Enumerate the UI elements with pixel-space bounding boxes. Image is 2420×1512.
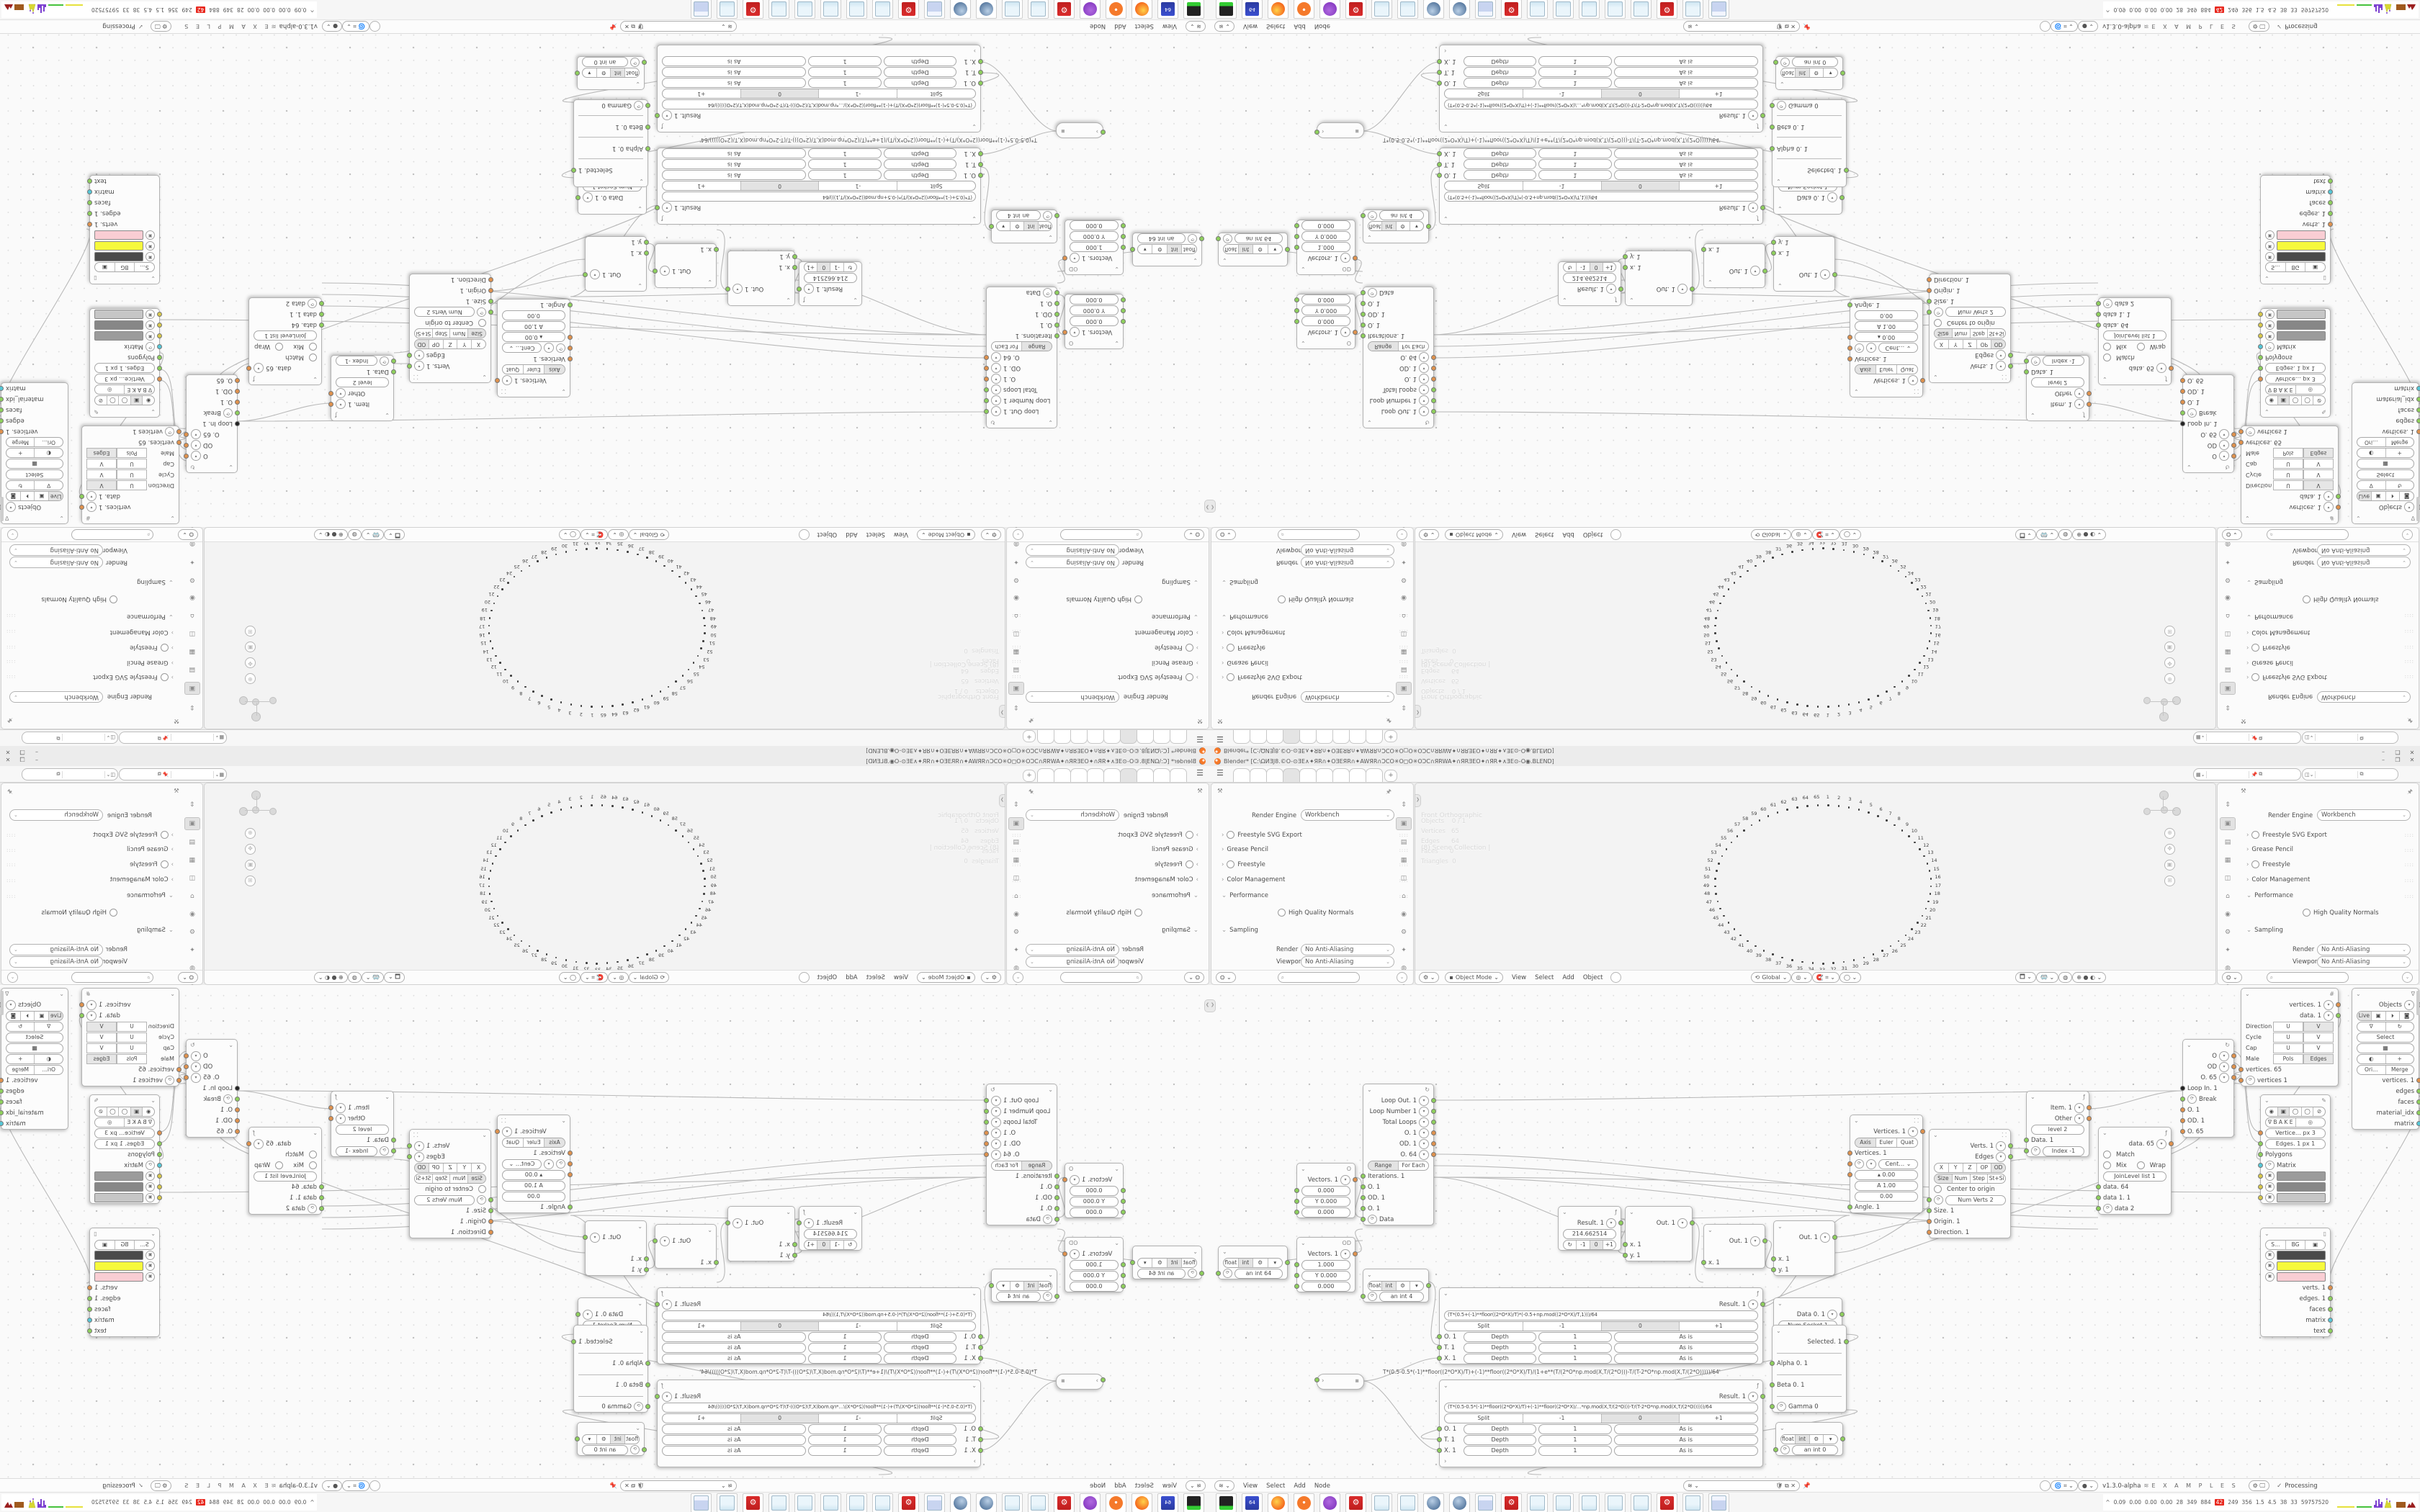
segment-button[interactable]: ↻ [843, 1241, 856, 1249]
overlay-toggle[interactable]: 🗖 ⌄ [384, 972, 405, 983]
socket-input[interactable] [568, 302, 573, 307]
node-row[interactable]: Y 0.000 [1297, 1196, 1355, 1207]
pin-icon[interactable]: 🖈 [1386, 714, 1391, 724]
node-row[interactable]: MalePolsEdges [82, 1053, 179, 1064]
socket-input[interactable] [1314, 130, 1319, 135]
node-header[interactable]: ⌄# [82, 513, 179, 523]
menu-add[interactable]: Add [1114, 23, 1126, 30]
socket-input[interactable] [792, 1242, 797, 1247]
segment-button[interactable]: For Each [992, 1161, 1021, 1170]
segment-button[interactable]: ⊘ [95, 397, 107, 405]
node-row[interactable]: Beta 0. 1 [574, 122, 647, 132]
node-row[interactable]: x. 1 [1626, 1239, 1692, 1250]
editor-type-button[interactable]: ⛭ ⌄ [1216, 529, 1236, 540]
socket-input[interactable] [1770, 1404, 1775, 1409]
socket-input[interactable] [488, 288, 493, 293]
section-freestyle-svg-export[interactable]: ›Freestyle SVG Export [2246, 831, 2327, 839]
segment-button[interactable]: + [2386, 1055, 2414, 1063]
segment-button[interactable]: +1 [1680, 90, 1757, 99]
segment-button[interactable]: Axis [1855, 1138, 1876, 1147]
segment-button[interactable]: Merge [2386, 1066, 2414, 1074]
socket-output[interactable] [184, 1064, 189, 1069]
node-header[interactable]: ⌄▯ [90, 273, 159, 284]
node-row[interactable]: 0.000 [1297, 316, 1355, 327]
node-row[interactable]: Out. 1▾ [586, 1232, 646, 1243]
socket-input[interactable] [157, 323, 162, 328]
segment-button[interactable]: ◐ [35, 449, 63, 458]
color-swatch[interactable] [2277, 1272, 2326, 1282]
socket-input[interactable] [488, 299, 493, 304]
section-freestyle-svg-export[interactable]: ›Freestyle SVG Export [2246, 673, 2327, 681]
node-row[interactable]: verts. 1 [90, 1282, 159, 1293]
socket-output[interactable] [1840, 71, 1845, 76]
menu-object[interactable]: Object [817, 531, 837, 539]
node-header[interactable]: ⌄O [1297, 1164, 1355, 1174]
node-viewer-draw[interactable]: ⌄✎◉▣◯◯⊘∇ B A K E◎Vertice… px 3Edges. 1 p… [2260, 1094, 2331, 1204]
segment-button[interactable]: ◎ [2296, 1118, 2326, 1127]
section-sampling[interactable]: ⌄Sampling [1222, 927, 1258, 934]
socket-output[interactable] [655, 205, 660, 210]
node-row[interactable]: DirectionUV [2241, 480, 2338, 491]
add-workspace-button[interactable]: + [1384, 730, 1397, 742]
socket-input[interactable] [645, 103, 650, 108]
node-row[interactable]: X. 1Depth1As is [658, 56, 980, 67]
node-row[interactable]: O. 65 [2183, 1126, 2233, 1137]
node-selected-alpha[interactable]: ⌄Selected. 1Alpha 0. 1Beta 0. 1⟳Gamma 0 [573, 1325, 648, 1413]
snap-toggle[interactable]: ◎ ⌄ [1791, 529, 1811, 540]
socket-input[interactable] [1121, 1284, 1126, 1289]
socket-output[interactable] [79, 494, 84, 499]
high-quality-normals-checkbox[interactable]: High Quality Normals [2303, 909, 2379, 917]
node-row[interactable]: ⟳Index -1 [2027, 356, 2089, 366]
socket-input[interactable] [235, 1086, 240, 1091]
node-row[interactable]: RangeFor Each [1363, 341, 1433, 352]
socket-output[interactable] [2231, 443, 2236, 448]
node-row[interactable]: Select [1, 469, 68, 480]
socket-output[interactable] [984, 398, 989, 403]
socket-output[interactable] [1618, 1220, 1623, 1225]
socket-input[interactable] [2180, 378, 2185, 383]
segment-button[interactable]: ↻ [1564, 1241, 1577, 1249]
taskbar-icon-floppy64[interactable]: 64 [1157, 0, 1178, 19]
menu-add[interactable]: Add [1114, 1482, 1126, 1490]
section-freestyle[interactable]: ›Freestyle [1155, 644, 1198, 652]
node-multiply[interactable]: ⌄Out. 1▾x. 1y. 1 [1773, 1220, 1835, 1276]
grid-icon[interactable]: ⊞ [2164, 626, 2175, 636]
segment-button[interactable]: ▾ [583, 1435, 596, 1444]
grid-cell[interactable]: U [2273, 1022, 2303, 1032]
taskbar-icon-note[interactable] [1527, 0, 1548, 19]
node-row[interactable]: MixWrap [249, 1160, 321, 1171]
segment-button[interactable]: ↻ [2386, 1022, 2414, 1031]
node-row[interactable]: CapUV [82, 1043, 179, 1053]
orientation-selector[interactable]: ⟲ Global ⌄ [1751, 529, 1792, 540]
toolbar-toggle-handle[interactable]: ❯ [1415, 794, 1421, 807]
node-row[interactable]: A 1.00 [498, 321, 570, 332]
node-header[interactable]: ⌄ [1774, 280, 1834, 291]
socket-input[interactable] [2180, 400, 2185, 405]
socket-input[interactable] [1294, 1284, 1299, 1289]
socket-input[interactable] [157, 1130, 162, 1135]
socket-output[interactable] [2328, 189, 2333, 194]
socket-input[interactable] [1361, 312, 1366, 317]
socket-output[interactable] [2416, 429, 2420, 434]
socket-input[interactable] [488, 1219, 493, 1224]
node-header[interactable]: ⌄↻ [987, 417, 1057, 428]
properties-tab-icon-7[interactable]: ⚙ [185, 927, 200, 938]
color-swatch[interactable] [94, 1272, 143, 1282]
segment-button[interactable]: int [1239, 246, 1254, 254]
viewport-aa-dropdown[interactable]: No Anti-Aliasing⌄ [1026, 956, 1119, 968]
node-row[interactable]: O. 65 [2183, 375, 2233, 386]
socket-input[interactable] [1294, 319, 1299, 324]
node-vector-o[interactable]: ⌄OVectors. 1▾0.000Y 0.0000.000 [1065, 294, 1124, 349]
node-row[interactable]: ⟳an int 64 [1133, 233, 1201, 244]
search-input[interactable]: ⌕ [2267, 529, 2349, 540]
node-row[interactable]: ◐+ [2352, 1053, 2419, 1064]
segment-button[interactable]: +1 [663, 1322, 740, 1331]
node-number-0[interactable]: ⌄floatint⚙▾⟳an int 0 [577, 1422, 645, 1456]
node-row[interactable]: x. 1 [586, 1254, 646, 1264]
node-row[interactable]: faces [1, 1097, 68, 1107]
workspace-tab-3[interactable] [1137, 730, 1154, 744]
node-header[interactable]: ⌄ƒ [1440, 1288, 1762, 1299]
node-row[interactable]: y. 1 [1626, 1250, 1692, 1261]
render-aa-dropdown[interactable]: No Anti-Aliasing⌄ [9, 557, 103, 568]
node-row[interactable]: data 1. 1 [2099, 1192, 2171, 1203]
segment-button[interactable]: ▣ [2305, 1241, 2325, 1249]
segment-button[interactable]: int [1239, 1259, 1254, 1267]
node-header[interactable]: ⌄ [1776, 78, 1842, 89]
properties-tab-column[interactable]: ⇕▣▤▦◫⌂◉⚙✦◍⌖ [1008, 799, 1024, 992]
section-color-management[interactable]: ›Color Management [110, 629, 174, 636]
socket-input[interactable] [235, 1097, 240, 1102]
socket-output[interactable] [2336, 1002, 2341, 1007]
node-row[interactable]: faces [2352, 405, 2419, 415]
properties-tab-icon-1[interactable]: ▣ [1396, 817, 1412, 830]
node-row[interactable]: matrix [90, 186, 159, 197]
viewport-tools[interactable]: ⊕ ✥ ▣ ⊞ [245, 626, 256, 684]
node-row[interactable]: matrix [2261, 1315, 2330, 1326]
segment-button[interactable]: Size [467, 1174, 485, 1183]
node-row[interactable]: Other▾ [331, 388, 393, 399]
node-header[interactable]: ⌄O [1065, 338, 1123, 348]
node-vector-o[interactable]: ⌄OVectors. 1▾0.000Y 0.0000.000 [1296, 294, 1355, 349]
socket-input[interactable] [1437, 59, 1442, 64]
node-row[interactable]: XYZOPOD [1930, 1162, 2010, 1173]
taskbar-icon-note[interactable] [1553, 1493, 1574, 1512]
properties-tab-icon-4[interactable]: ◫ [1397, 873, 1411, 884]
socket-output[interactable] [1760, 1394, 1765, 1399]
taskbar-icon-note[interactable] [1631, 0, 1652, 19]
node-row[interactable]: 1.000 [1297, 1259, 1355, 1270]
node-row[interactable]: text [2261, 1326, 2330, 1336]
socket-input[interactable] [157, 1174, 162, 1179]
node-row[interactable]: OD. 1▾ [1363, 1138, 1433, 1149]
taskbar-icon-calc[interactable] [924, 0, 945, 19]
node-row[interactable]: 0.000 [1297, 1207, 1355, 1218]
socket-input[interactable] [1294, 1262, 1299, 1267]
node-row[interactable]: ⟳data 2 [249, 298, 321, 309]
editor-type-button[interactable]: ⛭ ⌄ [1184, 529, 1204, 540]
editor-type-button[interactable]: ⛭ ⌄ [178, 529, 198, 540]
section-color-management[interactable]: ›Color Management [1135, 629, 1198, 636]
socket-input[interactable] [1437, 1356, 1442, 1361]
node-row[interactable]: ▴ 0.00 [498, 1169, 570, 1180]
segment-button[interactable]: ◉ [142, 1107, 154, 1116]
socket-input[interactable] [235, 410, 240, 415]
node-row[interactable]: Size. 1 [410, 1205, 490, 1216]
socket-input[interactable] [2180, 1097, 2185, 1102]
node-row[interactable]: T. 1Depth1As is [658, 1342, 980, 1353]
node-row[interactable]: Edges. 1 px 1 [2261, 363, 2330, 374]
taskbar-icon-redgear[interactable]: ⚙ [1054, 0, 1075, 19]
segment-button[interactable]: ◙ [2400, 1012, 2414, 1020]
grid-cell[interactable]: U [2273, 470, 2303, 480]
properties-tab-icon-7[interactable]: ⚙ [1397, 574, 1411, 585]
section-freestyle-svg-export[interactable]: ›Freestyle SVG Export [93, 673, 174, 681]
orientation-selector[interactable]: ⟲ Global ⌄ [1751, 972, 1792, 983]
node-row[interactable]: vertices. 1▾ [82, 999, 179, 1010]
node-row[interactable]: ◐+ [1, 448, 68, 459]
socket-input[interactable] [1121, 223, 1126, 228]
proportional-edit[interactable]: ◯ ⌄ [559, 972, 581, 983]
pan-icon[interactable]: ✥ [2164, 844, 2175, 855]
taskbar-icon-calc[interactable] [691, 1493, 712, 1512]
segment-button[interactable]: Euler [1876, 366, 1897, 374]
node-number-0[interactable]: ⌄floatint⚙▾⟳an int 0 [1775, 56, 1843, 90]
node-row[interactable]: Split-10+1 [658, 181, 980, 192]
node-header[interactable]: ⌄ [1774, 1298, 1842, 1309]
scrollbar[interactable] [2416, 991, 2419, 1015]
color-swatch[interactable] [2277, 230, 2326, 240]
node-row[interactable]: ▣ [2261, 1192, 2330, 1203]
workspace-tab-5[interactable] [1103, 730, 1121, 744]
socket-input[interactable] [1361, 1174, 1366, 1179]
node-row[interactable]: data. 65▾ [2099, 1138, 2171, 1149]
node-loop-in-left[interactable]: ⌄↻Loop Out. 1▾Loop Number 1▾Total Loops▾… [1363, 287, 1434, 428]
properties-tab-icon-2[interactable]: ▤ [185, 664, 200, 675]
node-header[interactable]: ⌄ [1133, 255, 1201, 266]
render-aa-dropdown[interactable]: No Anti-Aliasing⌄ [2317, 557, 2411, 568]
workspace-tab-6[interactable] [1087, 768, 1104, 782]
node-row[interactable]: OD. 1 [1363, 1192, 1433, 1203]
node-line[interactable]: ⌄⸬Verts. 1▾Edges▾XYZOPODSizeNumStepSt+Si… [409, 1129, 491, 1238]
socket-output[interactable] [79, 1013, 84, 1018]
workspace-tab-8[interactable] [1349, 730, 1366, 744]
segment-button[interactable]: Size [1935, 1174, 1953, 1183]
segment-button[interactable]: ⚙ [1010, 222, 1023, 231]
segment-button[interactable]: -1 [1523, 182, 1602, 191]
section-performance[interactable]: ⌄Performance [2246, 613, 2293, 620]
color-swatch[interactable] [2277, 1193, 2326, 1202]
socket-output[interactable] [87, 1307, 92, 1312]
socket-input[interactable] [1770, 1382, 1775, 1387]
node-row[interactable]: Ori…Merge [1, 437, 68, 448]
socket-input[interactable] [1623, 265, 1628, 270]
properties-tab-icon-3[interactable]: ▦ [185, 646, 200, 657]
socket-input[interactable] [1294, 1273, 1299, 1278]
socket-input[interactable] [1771, 251, 1776, 256]
minimize-button[interactable]: – [2378, 757, 2388, 763]
node-loop-in-right[interactable]: ⌄↻O▾OD▾O. 65▾Loop In. 1⟳BreakO. 1OD. 1O.… [186, 374, 238, 473]
grid-cell[interactable]: V [2303, 470, 2334, 480]
taskbar-icon-note[interactable] [1527, 1493, 1548, 1512]
node-row[interactable]: O. 1 [2183, 1104, 2233, 1115]
node-row[interactable]: ⟳data 2 [2099, 1203, 2171, 1214]
socket-input[interactable] [2258, 1152, 2263, 1157]
segment-button[interactable]: ▣ [35, 492, 49, 501]
annotation-circle[interactable] [1610, 529, 1621, 540]
node-header[interactable]: ⌄↻ [187, 462, 237, 472]
socket-output[interactable] [0, 1121, 4, 1126]
socket-input[interactable] [2180, 421, 2185, 426]
node-row[interactable]: A 1.00 [1850, 1180, 1922, 1191]
segment-button[interactable]: Live [48, 1012, 63, 1020]
properties-tab-icon-4[interactable]: ◫ [1397, 628, 1411, 639]
grid-cell[interactable]: V [86, 481, 117, 491]
node-row[interactable]: ▣ [2261, 230, 2330, 240]
color-swatch[interactable] [2277, 252, 2326, 261]
segment-button[interactable]: ◎ [95, 1118, 125, 1127]
node-row[interactable]: O. 1 [1363, 298, 1433, 309]
workspace-tab-5[interactable] [1299, 730, 1317, 744]
node-row[interactable]: ⟳vertices 1 [82, 1075, 179, 1086]
properties-tab-icon-2[interactable]: ▤ [185, 837, 200, 848]
node-row[interactable]: ⟳an int 4 [992, 210, 1057, 221]
properties-tab-icon-7[interactable]: ⚙ [1009, 927, 1023, 938]
node-header[interactable]: ⌄ [655, 1225, 716, 1236]
socket-input[interactable] [2258, 1184, 2263, 1189]
node-row[interactable] [1773, 1347, 1846, 1358]
workspace-tab-3[interactable] [1266, 768, 1283, 782]
segment-button[interactable]: Ori… [35, 1066, 63, 1074]
node-row[interactable]: Vertices. 1 [498, 1148, 570, 1158]
workspace-tab-7[interactable] [1332, 730, 1350, 744]
segment-button[interactable]: ⏵ [2386, 492, 2401, 501]
socket-input[interactable] [1216, 1271, 1221, 1276]
node-divide[interactable]: ⌄Out. 1▾x. 1y. 1 [1625, 1206, 1693, 1261]
workspace-tab-2[interactable] [1250, 768, 1267, 782]
socket-output[interactable] [1431, 1141, 1436, 1146]
segment-button[interactable]: ▾ [1268, 1259, 1283, 1267]
segment-button[interactable]: ⚙ [1253, 1259, 1268, 1267]
new-viewlayer-button[interactable]: ⧉ [57, 734, 60, 741]
node-list-join[interactable]: ⌄ƒdata. 65▾MatchMixWrapJoinLevel list 1d… [2098, 297, 2172, 385]
taskbar-icon-note[interactable] [846, 1493, 867, 1512]
taskbar-icon-redgear[interactable]: ⚙ [898, 0, 919, 19]
node-row[interactable]: JoinLevel list 1 [2099, 330, 2171, 341]
high-quality-normals-checkbox[interactable]: High Quality Normals [2303, 595, 2379, 603]
node-row[interactable]: Data. 1 [331, 1135, 393, 1146]
node-row[interactable]: Loop In. 1 [2183, 418, 2233, 429]
node-row[interactable]: O. 65 [187, 1126, 237, 1137]
node-row[interactable]: 0.000 [1065, 220, 1123, 231]
taskbar-icon-redgear[interactable]: ⚙ [898, 1493, 919, 1512]
draft-mode-button[interactable]: ● ⌄ [322, 1480, 342, 1491]
node-row[interactable]: edges. 1 [90, 1293, 159, 1304]
segment-button[interactable]: Split [1445, 1322, 1523, 1331]
shading-modes[interactable]: ⊕ ● ◐ ⌄ [2072, 972, 2106, 983]
socket-input[interactable] [645, 125, 650, 130]
properties-tab-icon-7[interactable]: ⚙ [185, 574, 200, 585]
node-list-item[interactable]: ⌄ƒItem. 1▾Other▾level 2Data. 1⟳Index -1 [2026, 355, 2089, 421]
shading-modes[interactable]: ⊕ ● ◐ ⌄ [2072, 529, 2106, 540]
node-row[interactable]: Verts. 1▾ [410, 1140, 490, 1151]
node-row[interactable]: OD. 1 [987, 1192, 1057, 1203]
socket-output[interactable] [1920, 378, 1925, 383]
node-row[interactable]: MixWrap [249, 341, 321, 352]
socket-output[interactable] [1431, 398, 1436, 403]
node-header[interactable]: ⌄O [1065, 1164, 1123, 1174]
node-row[interactable]: O. 1 [987, 1182, 1057, 1192]
node-row[interactable]: (T*(0.5+(-1)**floor((2*O*X)/T)*(-0.5+np.… [658, 1310, 980, 1320]
segment-button[interactable]: +1 [663, 1414, 740, 1423]
node-header[interactable]: ⌄ [1133, 1246, 1201, 1257]
node-header[interactable]: ⌄↻ [1363, 1084, 1433, 1095]
socket-output[interactable] [184, 454, 189, 459]
node-row[interactable]: Vertices. 1▾ [498, 1126, 570, 1137]
properties-tab-icon-4[interactable]: ◫ [185, 628, 200, 639]
socket-input[interactable] [235, 389, 240, 394]
nav-gizmo[interactable] [2143, 791, 2181, 828]
node-row[interactable]: O. 65▾ [187, 429, 237, 440]
node-row[interactable]: ⟳vertices 1 [2241, 1075, 2338, 1086]
menu-node[interactable]: Node [1314, 23, 1330, 30]
socket-output[interactable] [2416, 1121, 2420, 1126]
socket-input[interactable] [235, 1118, 240, 1123]
socket-input[interactable] [2180, 1118, 2185, 1123]
node-row[interactable]: verts. 1 [2261, 1282, 2330, 1293]
pin-icon[interactable]: 📌 [1803, 1482, 1811, 1490]
node-formula-b[interactable]: ⌄ƒResult. 1▾(T*(0.5-0.5*(-1)**floor((2*O… [1439, 45, 1763, 132]
node-row[interactable]: ⟳an int 0 [1776, 57, 1842, 68]
node-selected-alpha[interactable]: ⌄Selected. 1Alpha 0. 1Beta 0. 1⟳Gamma 0 [1772, 99, 1847, 187]
node-header[interactable]: ⌄ [1773, 1326, 1846, 1336]
node-header[interactable]: ⌄ [1219, 1246, 1287, 1257]
socket-input[interactable] [157, 333, 162, 338]
segment-button[interactable]: ⊘ [2313, 1107, 2325, 1116]
options-chevron[interactable]: ⌄ [1397, 529, 1407, 540]
node-row[interactable]: ▦ [2352, 459, 2419, 469]
socket-input[interactable] [1847, 1205, 1852, 1210]
socket-output[interactable] [984, 409, 989, 414]
socket-input[interactable] [157, 377, 162, 382]
node-objects-in[interactable]: ⌄∇Objects▾Live▣⏵◙∇↻Select▦◐+Ori…Mergever… [2352, 988, 2419, 1130]
node-row[interactable]: Out. 1▾ [1774, 1232, 1834, 1243]
node-vector-od[interactable]: ⌄ODVectors. 1▾1.000Y 0.0000.000 [1065, 220, 1124, 275]
node-tree-selector[interactable]: ≋ ⌄ 🛡 ⧉ ✕ [620, 21, 737, 32]
node-row[interactable]: Objects▾ [1, 999, 68, 1010]
gizmo-toggle[interactable]: 🥽 ⌄ [2036, 972, 2058, 983]
segment-button[interactable]: -1 [1577, 264, 1590, 272]
node-row[interactable] [655, 255, 716, 266]
menu-select[interactable]: Select [866, 974, 885, 981]
socket-output[interactable] [984, 355, 989, 360]
socket-output[interactable] [984, 366, 989, 371]
node-row[interactable]: Item. 1▾ [331, 1102, 393, 1113]
socket-input[interactable] [645, 1382, 650, 1387]
socket-input[interactable] [2258, 355, 2263, 360]
socket-input[interactable] [391, 1148, 396, 1153]
socket-input[interactable] [568, 346, 573, 351]
node-row[interactable]: ◉▣◯◯⊘ [2261, 1106, 2330, 1117]
socket-input[interactable] [2258, 1195, 2263, 1200]
node-row[interactable]: text [2261, 176, 2330, 186]
menu-hamburger-icon[interactable]: ☰ [1216, 769, 1226, 777]
node-row[interactable]: ▣ [2261, 1272, 2330, 1282]
search-input[interactable]: ⌕ [1278, 529, 1360, 540]
